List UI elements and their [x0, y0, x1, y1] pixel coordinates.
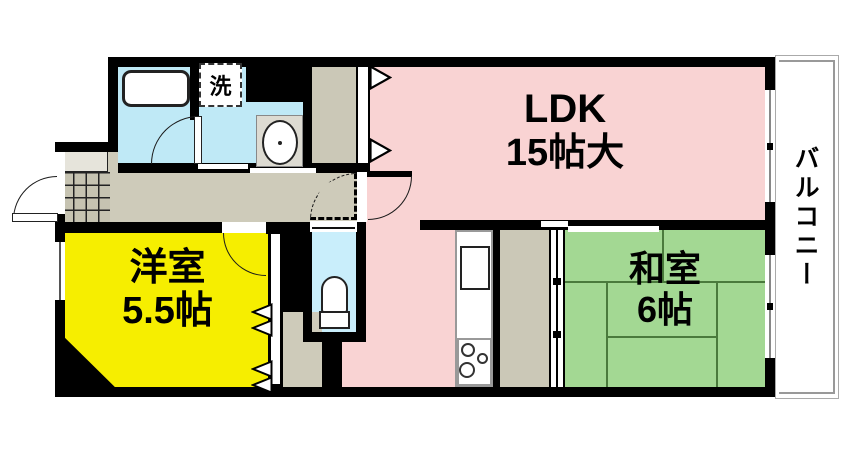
floor-plan: 洗 LDK 15帖大 洋室 5.5帖 和室 6帖 バルコニー: [0, 0, 852, 461]
ldk-closet-floor: [312, 67, 358, 168]
japanese-sliding-door-a: [541, 221, 568, 227]
wall-toilet-left: [303, 222, 312, 342]
wall-hall-bottom: [55, 222, 222, 233]
ldk-room-name: LDK: [524, 87, 606, 132]
wall-bath-divider: [190, 67, 199, 120]
balcony-label: バルコニー: [786, 100, 824, 335]
japanese-sliding-door-b: [568, 226, 659, 232]
stove-burner: [477, 353, 488, 364]
wall-washroom-closet: [303, 67, 312, 163]
ldk-room-size: 15帖大: [506, 132, 624, 175]
wall-bath-left: [108, 57, 118, 152]
western-room-label-group: 洋室 5.5帖: [70, 240, 265, 340]
japanese-room-label-group: 和室 6帖: [575, 242, 755, 337]
japanese-balcony-window-nub: [767, 303, 773, 310]
bathtub: [122, 70, 190, 107]
toilet-tank: [319, 311, 350, 329]
japanese-closet-door-nub: [553, 331, 561, 338]
japanese-closet-door-centerline: [556, 230, 558, 387]
western-window-line: [59, 242, 61, 300]
folding-door-icon: [369, 138, 392, 163]
stove-burner: [459, 362, 475, 378]
entrance-tile-floor: [62, 172, 110, 222]
washing-machine-space: 洗: [199, 63, 242, 107]
washroom-counter-block: [246, 63, 303, 102]
japanese-room-name: 和室: [629, 249, 701, 289]
washroom-sliding-door-a: [198, 164, 248, 169]
wall-kitchen-right: [493, 222, 500, 397]
toilet-door-leaf: [312, 227, 355, 229]
folding-door-icon: [251, 360, 273, 394]
balcony-label-text: バルコニー: [791, 145, 819, 290]
washing-machine-label: 洗: [209, 69, 231, 101]
stove-burner: [461, 343, 475, 357]
wall-bottom: [55, 387, 775, 397]
japanese-room-size: 6帖: [637, 290, 693, 330]
kitchen-sink: [460, 246, 490, 290]
western-room-door-opening: [222, 222, 266, 233]
western-room-name: 洋室: [129, 247, 205, 290]
toilet-bowl: [321, 276, 348, 313]
ldk-doorway: [357, 172, 367, 222]
japanese-closet-floor: [500, 230, 549, 387]
entrance-door-leaf: [12, 213, 58, 222]
western-room-size: 5.5帖: [122, 290, 213, 333]
ldk-closet-door-track: [358, 67, 368, 163]
washroom-sliding-door-b: [250, 168, 316, 173]
washbasin-drain: [278, 141, 282, 145]
wall-toilet-right: [356, 222, 366, 342]
japanese-closet-door-nub: [553, 278, 561, 285]
ldk-label-group: LDK 15帖大: [400, 78, 730, 183]
folding-door-icon: [369, 65, 392, 90]
wall-toilet-bottom: [303, 332, 366, 342]
shoe-cabinet: [62, 151, 108, 172]
wall-below-toilet: [322, 342, 342, 397]
ldk-balcony-window-nub: [767, 143, 773, 150]
bathroom-door-leaf: [194, 116, 202, 164]
